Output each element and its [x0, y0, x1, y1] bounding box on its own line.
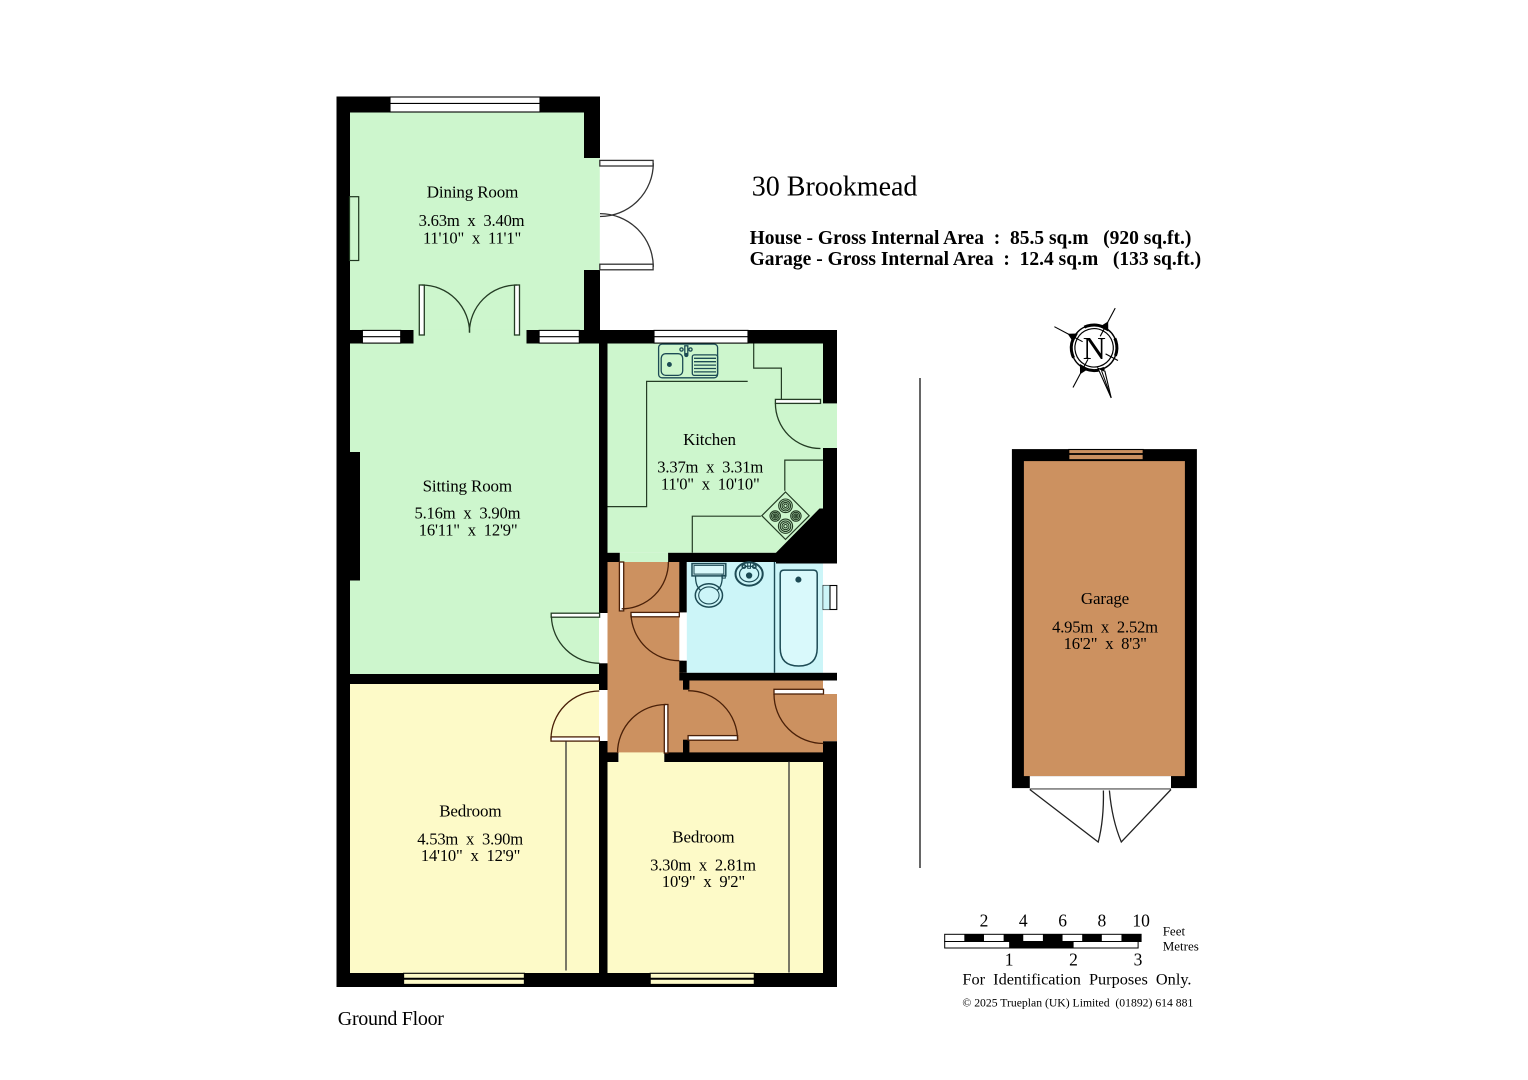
svg-text:N: N: [1083, 330, 1106, 366]
svg-text:2: 2: [980, 911, 989, 931]
svg-text:14'10" x 12'9": 14'10" x 12'9": [421, 846, 520, 865]
svg-text:Feet: Feet: [1163, 924, 1186, 939]
svg-text:Dining Room: Dining Room: [427, 183, 518, 202]
svg-text:4: 4: [1019, 911, 1028, 931]
svg-text:Kitchen: Kitchen: [683, 430, 736, 449]
svg-text:Ground Floor: Ground Floor: [338, 1008, 444, 1030]
svg-text:6: 6: [1058, 911, 1067, 931]
svg-text:1: 1: [1005, 950, 1014, 970]
svg-text:16'2" x 8'3": 16'2" x 8'3": [1064, 634, 1147, 653]
svg-text:House - Gross Internal Area :: House - Gross Internal Area : 85.5 sq.m …: [750, 228, 1192, 249]
svg-text:10: 10: [1132, 911, 1150, 931]
svg-text:3: 3: [1134, 950, 1143, 970]
svg-text:11'10" x 11'1": 11'10" x 11'1": [423, 228, 521, 247]
svg-text:3.63m x 3.40m: 3.63m x 3.40m: [419, 211, 525, 230]
svg-text:Bedroom: Bedroom: [672, 828, 734, 847]
svg-text:Bedroom: Bedroom: [439, 802, 501, 821]
svg-text:Sitting Room: Sitting Room: [423, 477, 512, 496]
svg-text:2: 2: [1069, 950, 1078, 970]
svg-text:30 Brookmead: 30 Brookmead: [752, 172, 918, 203]
svg-text:Metres: Metres: [1163, 939, 1199, 954]
svg-text:Garage: Garage: [1081, 589, 1129, 608]
svg-text:11'0" x 10'10": 11'0" x 10'10": [661, 475, 760, 494]
svg-text:16'11" x 12'9": 16'11" x 12'9": [419, 521, 518, 540]
svg-text:8: 8: [1098, 911, 1107, 931]
svg-text:10'9" x 9'2": 10'9" x 9'2": [662, 872, 745, 891]
svg-text:Garage - Gross Internal Area: Garage - Gross Internal Area : 12.4 sq.m…: [750, 249, 1202, 270]
svg-text:© 2025 Trueplan (UK) Limited: © 2025 Trueplan (UK) Limited (01892) 614…: [962, 996, 1193, 1009]
svg-text:For Identification Purposes: For Identification Purposes Only.: [962, 970, 1191, 989]
